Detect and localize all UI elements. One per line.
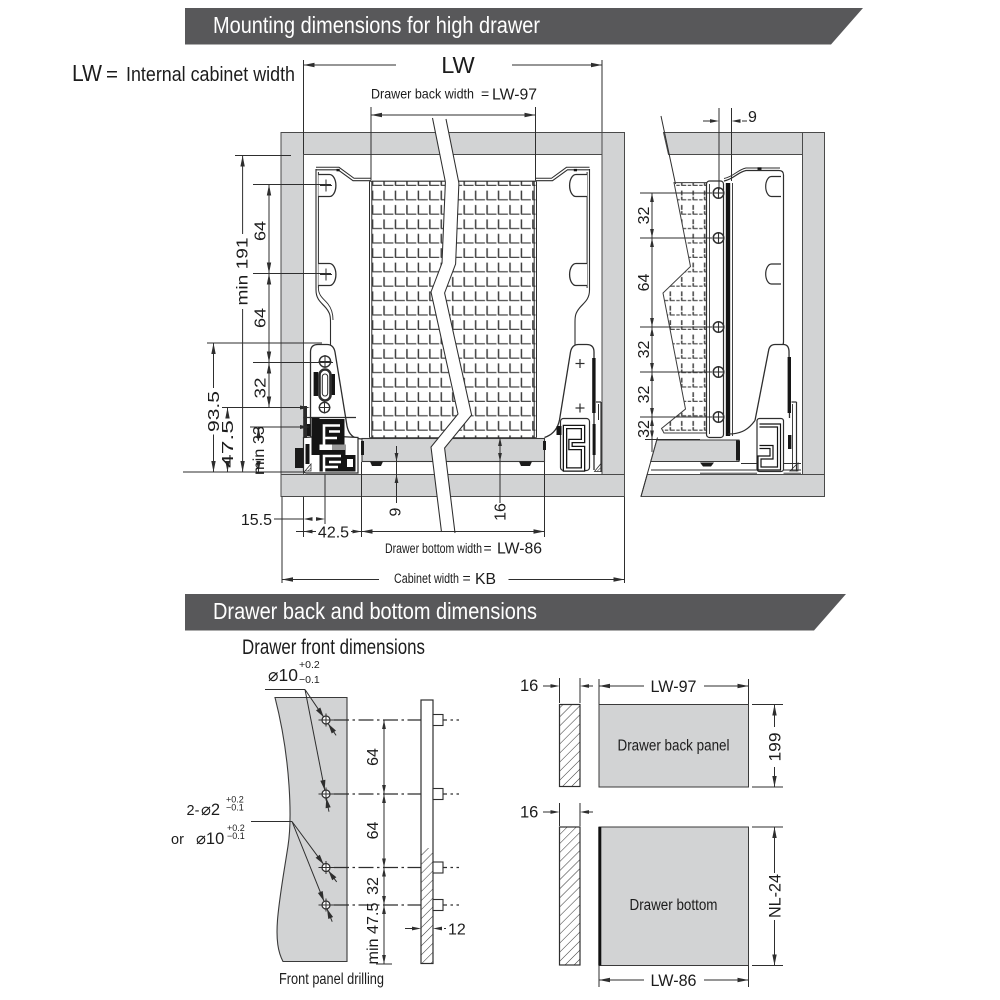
svg-text:Drawer bottom width: Drawer bottom width	[385, 541, 482, 556]
svg-text:Cabinet width: Cabinet width	[394, 571, 459, 586]
svg-text:16: 16	[520, 804, 538, 822]
svg-text:16: 16	[520, 677, 538, 695]
svg-text:47.5: 47.5	[220, 420, 237, 468]
svg-text:NL-24: NL-24	[767, 874, 785, 918]
svg-text:12: 12	[448, 922, 466, 939]
svg-text:32: 32	[636, 207, 653, 225]
svg-text:Drawer bottom: Drawer bottom	[630, 897, 718, 914]
svg-text:Drawer back panel: Drawer back panel	[618, 738, 730, 755]
svg-text:9: 9	[748, 109, 757, 126]
svg-text:64: 64	[365, 748, 382, 766]
svg-text:=: =	[484, 540, 492, 556]
svg-text:min 191: min 191	[235, 237, 252, 305]
svg-text:16: 16	[493, 503, 510, 521]
svg-text:Drawer back width: Drawer back width	[371, 86, 474, 102]
svg-text:=: =	[463, 570, 471, 586]
svg-text:+0.2: +0.2	[299, 659, 320, 671]
svg-text:Internal cabinet width: Internal cabinet width	[126, 63, 295, 86]
svg-text:2-: 2-	[187, 803, 200, 819]
svg-text:32: 32	[636, 420, 653, 438]
svg-text:199: 199	[767, 733, 785, 762]
svg-text:32: 32	[253, 377, 270, 398]
svg-text:64: 64	[365, 822, 382, 840]
svg-text:⌀10: ⌀10	[196, 830, 224, 848]
svg-text:64: 64	[636, 274, 653, 292]
svg-text:9: 9	[388, 507, 405, 516]
svg-text:42.5: 42.5	[318, 525, 349, 542]
svg-text:LW-86: LW-86	[497, 541, 542, 558]
svg-text:LW-97: LW-97	[651, 678, 697, 696]
svg-text:LW: LW	[441, 52, 475, 78]
svg-text:−0.1: −0.1	[299, 674, 320, 686]
svg-text:=: =	[106, 63, 118, 86]
svg-text:Drawer front dimensions: Drawer front dimensions	[242, 636, 425, 659]
svg-text:Mounting dimensions for high d: Mounting dimensions for high drawer	[213, 12, 540, 38]
svg-text:32: 32	[636, 386, 653, 404]
svg-text:⌀2: ⌀2	[201, 801, 220, 819]
svg-text:min 47.5: min 47.5	[365, 902, 382, 964]
svg-text:LW-86: LW-86	[651, 972, 697, 990]
svg-text:Drawer back and bottom dimensi: Drawer back and bottom dimensions	[213, 598, 537, 624]
svg-text:64: 64	[253, 308, 270, 328]
svg-text:15.5: 15.5	[241, 512, 272, 529]
svg-text:LW-97: LW-97	[492, 87, 537, 104]
svg-text:min 33: min 33	[251, 426, 268, 475]
svg-text:64: 64	[253, 221, 270, 241]
svg-text:KB: KB	[475, 571, 496, 588]
svg-text:LW: LW	[72, 60, 103, 86]
svg-text:Front panel drilling: Front panel drilling	[279, 971, 384, 988]
svg-text:⌀10: ⌀10	[268, 665, 298, 685]
svg-text:−0.1: −0.1	[227, 831, 245, 841]
svg-text:32: 32	[636, 341, 653, 359]
svg-text:or: or	[171, 832, 184, 848]
svg-text:=: =	[481, 86, 489, 102]
svg-text:−0.1: −0.1	[226, 803, 244, 813]
svg-text:32: 32	[365, 877, 382, 895]
